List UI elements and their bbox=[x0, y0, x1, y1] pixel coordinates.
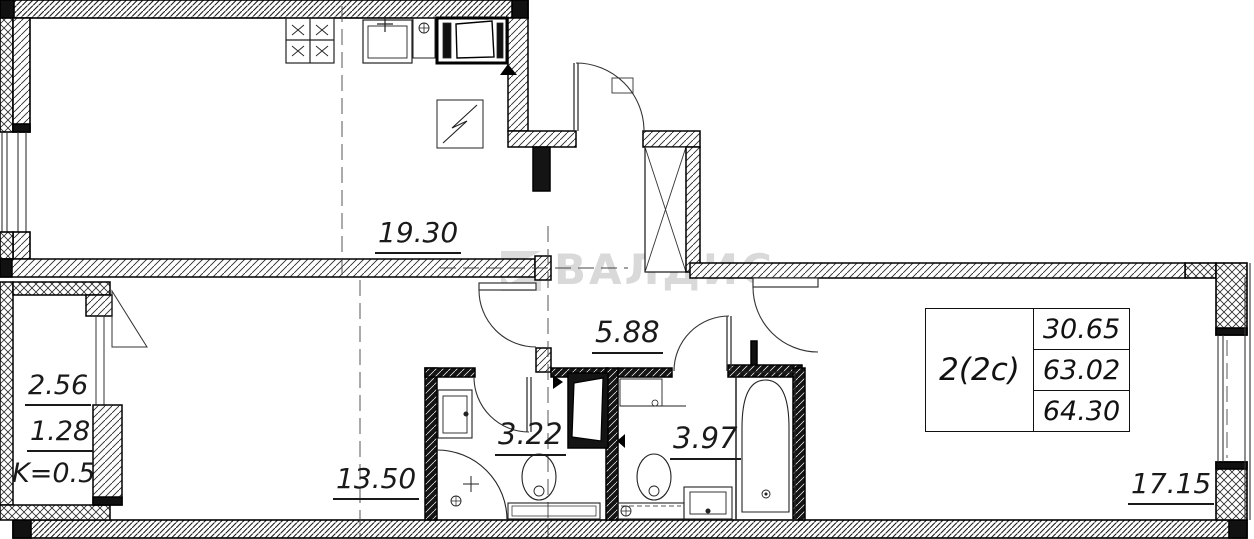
toilet-icon bbox=[508, 454, 600, 519]
door-kitchen-living bbox=[479, 283, 536, 347]
shower-icon bbox=[437, 450, 507, 520]
room-label-bathroom-2: 3.97 bbox=[670, 424, 741, 453]
kitchen-sink-icon bbox=[363, 16, 412, 63]
balcony-area-label: 2.56 bbox=[25, 372, 91, 399]
balcony-door bbox=[112, 291, 147, 347]
room-label-hall: 5.88 bbox=[592, 318, 663, 347]
window-left bbox=[2, 132, 26, 232]
fridge-icon bbox=[437, 18, 507, 63]
floor-plan: ВАЛДИС bbox=[0, 0, 1254, 539]
balcony-reduced-area-label: 1.28 bbox=[27, 418, 93, 445]
vent-shaft-icon bbox=[645, 147, 686, 272]
kitchen-fixtures bbox=[286, 16, 517, 148]
dishwasher-icon bbox=[413, 18, 435, 58]
bathroom-sink-icon bbox=[438, 390, 472, 438]
unit-type-label: 2(2c) bbox=[926, 309, 1034, 431]
room-label-bathroom-1: 3.22 bbox=[495, 420, 566, 449]
apartment-area-value: 63.02 bbox=[1034, 349, 1129, 390]
stove-icon bbox=[286, 18, 334, 63]
toilet-2-icon bbox=[618, 454, 684, 519]
balcony-coefficient-label: K=0.5 bbox=[12, 460, 95, 487]
washing-machine-icon bbox=[568, 373, 608, 448]
living-area-value: 30.65 bbox=[1034, 309, 1129, 349]
bathroom-2-sink-icon bbox=[684, 487, 732, 519]
bathtub-icon bbox=[736, 372, 795, 520]
total-area-value: 64.30 bbox=[1034, 390, 1129, 431]
electrical-panel-icon bbox=[437, 100, 483, 148]
room-label-living-room: 17.15 bbox=[1128, 470, 1214, 498]
plan-drawing bbox=[0, 0, 1254, 539]
door-living-room bbox=[753, 278, 818, 352]
room-label-bedroom: 13.50 bbox=[333, 465, 419, 493]
room-label-kitchen-living: 19.30 bbox=[375, 219, 461, 247]
entrance-door bbox=[574, 63, 644, 131]
door-bathroom-2 bbox=[674, 316, 731, 371]
shelf-icon bbox=[620, 379, 686, 406]
unit-info-table: 2(2c) 30.65 63.02 64.30 bbox=[925, 308, 1130, 432]
balcony-window bbox=[96, 316, 104, 405]
